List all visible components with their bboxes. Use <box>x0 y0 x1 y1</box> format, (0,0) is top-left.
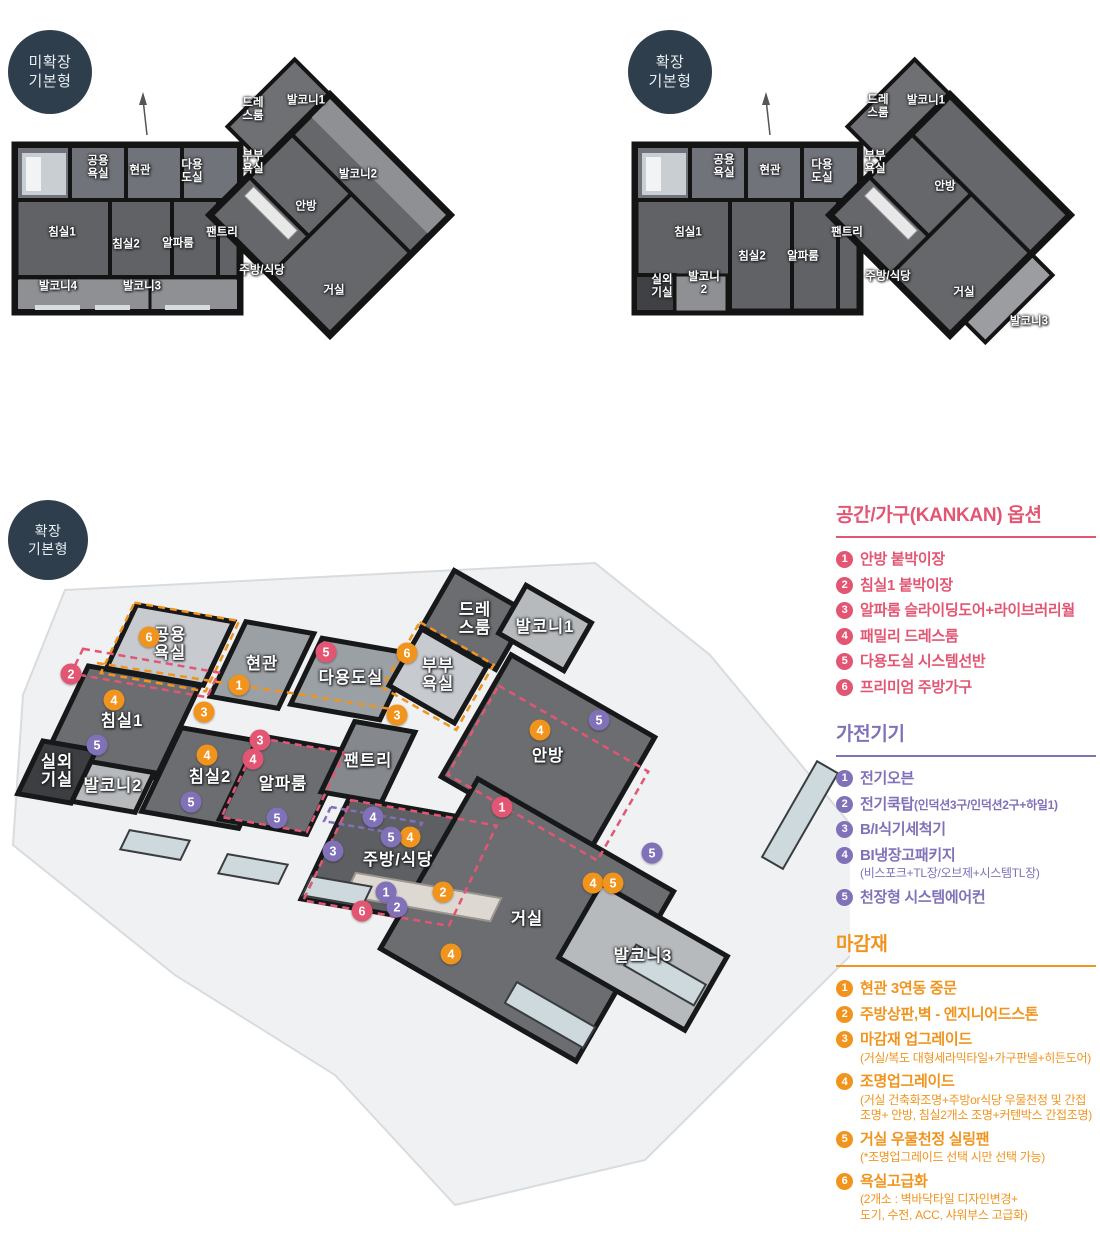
room-label: 다용 도실 <box>181 159 202 185</box>
floorplan-expanded-labels: 공용 욕실현관다용 도실드레 스룸발코니1부부 욕실안방침실1침실2알파룸팬트리… <box>630 35 1100 415</box>
room-label: 공용 욕실 <box>87 155 108 181</box>
legend-item-text: 안방 붙박이장 <box>860 550 945 570</box>
legend-item-number: 3 <box>836 602 853 619</box>
marker-finish-5: 5 <box>603 873 624 894</box>
room-label: 공용 욕실 <box>713 154 734 180</box>
legend-item: 2침실1 붙박이장 <box>836 576 1096 596</box>
room-label: 침실2 <box>112 239 140 252</box>
marker-option-2: 2 <box>61 664 82 685</box>
marker-appliance-3: 3 <box>323 841 344 862</box>
legend-item-sub: (*조명업그레이드 선택 시만 선택 가능) <box>860 1150 1045 1166</box>
legend: 공간/가구(KANKAN) 옵션1안방 붙박이장2침실1 붙박이장3알파룸 슬라… <box>836 500 1096 1246</box>
legend-section-title: 가전기기 <box>836 719 1096 757</box>
marker-finish-4: 4 <box>197 745 218 766</box>
marker-option-5: 5 <box>316 642 337 663</box>
legend-item-number: 3 <box>836 1031 853 1048</box>
legend-item: 2주방상판,벽 - 엔지니어드스톤 <box>836 1005 1096 1025</box>
marker-finish-3: 3 <box>387 705 408 726</box>
floorplan-unexpanded-labels: 공용 욕실현관다용 도실드레 스룸발코니1부부 욕실발코니2안방침실1침실2알파… <box>10 35 480 415</box>
legend-item-text: B/I식기세척기 <box>860 820 946 840</box>
room-label: 현관 <box>129 165 150 178</box>
legend-item-text: 욕실고급화(2개소 : 벽바닥타일 디자인변경+ 도기, 수전, ACC, 샤워… <box>860 1172 1028 1224</box>
legend-item-text: 마감재 업그레이드(거실/복도 대형세라믹타일+가구판넬+히든도어) <box>860 1030 1091 1066</box>
legend-item: 6프리미엄 주방가구 <box>836 678 1096 698</box>
legend-item: 5다용도실 시스템선반 <box>836 652 1096 672</box>
legend-item-number: 1 <box>836 980 853 997</box>
room-label: 팬트리 <box>206 227 238 240</box>
marker-option-6: 6 <box>352 901 373 922</box>
room-label: 발코니3 <box>1010 316 1048 329</box>
legend-item-number: 2 <box>836 1006 853 1023</box>
room-label: 부부 욕실 <box>864 150 885 176</box>
marker-appliance-5: 5 <box>87 735 108 756</box>
room-label: 발코니1 <box>907 95 945 108</box>
room-label: 침실1 <box>48 227 76 240</box>
legend-item-sub: (거실/복도 대형세라믹타일+가구판넬+히든도어) <box>860 1051 1091 1067</box>
room-label: 주방/식당 <box>239 265 285 278</box>
legend-item-number: 4 <box>836 847 853 864</box>
legend-section-option: 공간/가구(KANKAN) 옵션1안방 붙박이장2침실1 붙박이장3알파룸 슬라… <box>836 500 1096 697</box>
legend-item-number: 5 <box>836 1131 853 1148</box>
room-label: 침실2 <box>738 251 766 264</box>
legend-item-text: 전기오븐 <box>860 769 914 789</box>
legend-item: 3알파룸 슬라이딩도어+라이브러리월 <box>836 601 1096 621</box>
room-label: 다용 도실 <box>811 159 832 185</box>
legend-item-number: 2 <box>836 796 853 813</box>
legend-item-text: 주방상판,벽 - 엔지니어드스톤 <box>860 1005 1038 1025</box>
marker-finish-6: 6 <box>139 627 160 648</box>
legend-item-text: 침실1 붙박이장 <box>860 576 953 596</box>
room-label: 발코니 2 <box>688 271 720 297</box>
marker-appliance-2: 2 <box>387 897 408 918</box>
floorplan-3d-markers: 25341661363444424455555453125 <box>5 545 850 1210</box>
room-label: 드레 스룸 <box>867 94 888 120</box>
legend-item: 1전기오븐 <box>836 769 1096 789</box>
legend-section-title: 공간/가구(KANKAN) 옵션 <box>836 500 1096 538</box>
legend-item: 4BI냉장고패키지(비스포크+TL장/오브제+시스템TL장) <box>836 846 1096 882</box>
legend-item-text: 다용도실 시스템선반 <box>860 652 985 672</box>
legend-item-text: 패밀리 드레스룸 <box>860 627 958 647</box>
room-label: 현관 <box>759 165 780 178</box>
room-label: 거실 <box>953 287 974 300</box>
room-label: 발코니3 <box>123 281 161 294</box>
legend-item: 3마감재 업그레이드(거실/복도 대형세라믹타일+가구판넬+히든도어) <box>836 1030 1096 1066</box>
legend-section-finish: 마감재1현관 3연동 중문2주방상판,벽 - 엔지니어드스톤3마감재 업그레이드… <box>836 929 1096 1224</box>
legend-item-number: 6 <box>836 679 853 696</box>
room-label: 드레 스룸 <box>242 97 263 123</box>
legend-item-number: 5 <box>836 889 853 906</box>
marker-appliance-5: 5 <box>642 843 663 864</box>
room-label: 팬트리 <box>831 227 863 240</box>
marker-finish-4: 4 <box>583 873 604 894</box>
room-label: 침실1 <box>674 227 702 240</box>
legend-item-text: BI냉장고패키지(비스포크+TL장/오브제+시스템TL장) <box>860 846 1040 882</box>
legend-item-text: 알파룸 슬라이딩도어+라이브러리월 <box>860 601 1075 621</box>
room-label: 부부 욕실 <box>242 150 263 176</box>
marker-option-1: 1 <box>492 797 513 818</box>
legend-item-text: 현관 3연동 중문 <box>860 979 957 999</box>
legend-item: 1안방 붙박이장 <box>836 550 1096 570</box>
floorplan-expanded: 공용 욕실현관다용 도실드레 스룸발코니1부부 욕실안방침실1침실2알파룸팬트리… <box>630 35 1100 415</box>
floorplan-3d-expanded: 공용 욕실현관다용도실드레 스룸발코니1부부 욕실침실1실외 기실발코니2침실2… <box>5 545 850 1210</box>
legend-item: 5거실 우물천정 실링팬(*조명업그레이드 선택 시만 선택 가능) <box>836 1130 1096 1166</box>
marker-appliance-5: 5 <box>589 710 610 731</box>
legend-item: 4패밀리 드레스룸 <box>836 627 1096 647</box>
legend-item-text: 전기쿡탑(인덕션3구/인덕션2구+하일1) <box>860 795 1058 815</box>
legend-section-appliance: 가전기기1전기오븐2전기쿡탑(인덕션3구/인덕션2구+하일1)3B/I식기세척기… <box>836 719 1096 907</box>
legend-item: 2전기쿡탑(인덕션3구/인덕션2구+하일1) <box>836 795 1096 815</box>
marker-finish-2: 2 <box>433 882 454 903</box>
legend-item-text: 천장형 시스템에어컨 <box>860 888 985 908</box>
legend-item-number: 5 <box>836 653 853 670</box>
floorplan-unexpanded: 공용 욕실현관다용 도실드레 스룸발코니1부부 욕실발코니2안방침실1침실2알파… <box>10 35 480 415</box>
legend-item-number: 2 <box>836 577 853 594</box>
legend-item-text: 거실 우물천정 실링팬(*조명업그레이드 선택 시만 선택 가능) <box>860 1130 1045 1166</box>
room-label: 거실 <box>323 285 344 298</box>
legend-item-number: 4 <box>836 1073 853 1090</box>
marker-finish-4: 4 <box>400 827 421 848</box>
room-label: 실외 기실 <box>651 274 672 300</box>
room-label: 알파룸 <box>787 251 819 264</box>
legend-item-number: 4 <box>836 628 853 645</box>
room-label: 알파룸 <box>162 238 194 251</box>
marker-appliance-5: 5 <box>181 792 202 813</box>
marker-finish-4: 4 <box>104 690 125 711</box>
legend-item-number: 1 <box>836 551 853 568</box>
legend-item-number: 3 <box>836 821 853 838</box>
marker-option-4: 4 <box>243 749 264 770</box>
legend-item-text: 프리미엄 주방가구 <box>860 678 972 698</box>
legend-item-number: 6 <box>836 1173 853 1190</box>
marker-appliance-4: 4 <box>363 807 384 828</box>
marker-appliance-5: 5 <box>381 827 402 848</box>
marker-appliance-5: 5 <box>267 808 288 829</box>
legend-item-number: 1 <box>836 770 853 787</box>
legend-item-text: 조명업그레이드(거실 건축화조명+주방or식당 우물천정 및 간접 조명+ 안방… <box>860 1072 1092 1124</box>
legend-item-sub: (2개소 : 벽바닥타일 디자인변경+ 도기, 수전, ACC, 샤워부스 고급… <box>860 1192 1028 1223</box>
marker-option-3: 3 <box>250 730 271 751</box>
legend-section-title: 마감재 <box>836 929 1096 967</box>
room-label: 발코니2 <box>339 169 377 182</box>
room-label: 주방/식당 <box>865 271 911 284</box>
floorplan-page: { "badges":{"plan1":"미확장\n기본형","plan2":"… <box>0 0 1100 1232</box>
legend-item: 4조명업그레이드(거실 건축화조명+주방or식당 우물천정 및 간접 조명+ 안… <box>836 1072 1096 1124</box>
legend-item: 5천장형 시스템에어컨 <box>836 888 1096 908</box>
marker-finish-1: 1 <box>229 675 250 696</box>
marker-finish-4: 4 <box>441 944 462 965</box>
legend-item: 6욕실고급화(2개소 : 벽바닥타일 디자인변경+ 도기, 수전, ACC, 샤… <box>836 1172 1096 1224</box>
marker-finish-3: 3 <box>194 702 215 723</box>
room-label: 발코니4 <box>39 281 77 294</box>
room-label: 안방 <box>934 181 955 194</box>
legend-item-sub: (거실 건축화조명+주방or식당 우물천정 및 간접 조명+ 안방, 침실2개소… <box>860 1093 1092 1124</box>
marker-finish-4: 4 <box>530 720 551 741</box>
legend-item-sub: (비스포크+TL장/오브제+시스템TL장) <box>860 866 1040 882</box>
legend-item: 1현관 3연동 중문 <box>836 979 1096 999</box>
marker-finish-6: 6 <box>397 643 418 664</box>
legend-item-inline-sub: (인덕션3구/인덕션2구+하일1) <box>914 798 1058 812</box>
room-label: 발코니1 <box>287 95 325 108</box>
room-label: 안방 <box>295 201 316 214</box>
legend-item: 3B/I식기세척기 <box>836 820 1096 840</box>
